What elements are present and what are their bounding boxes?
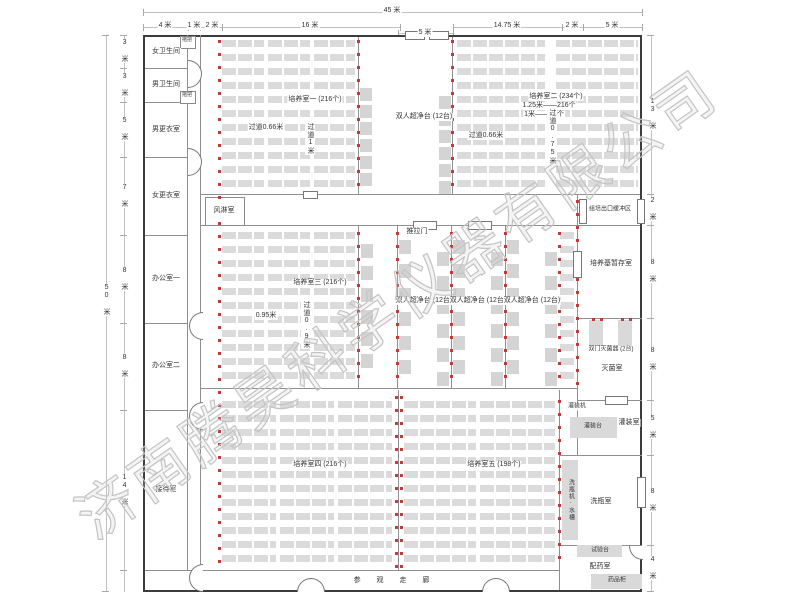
dimension-tick xyxy=(400,24,401,31)
room-label-reception: 接待室 xyxy=(155,486,178,494)
door-rect xyxy=(303,191,318,199)
red-dot xyxy=(400,461,403,464)
shelf-row xyxy=(404,471,476,478)
red-dot xyxy=(357,362,360,365)
shelf-row xyxy=(404,527,476,534)
shelf-row xyxy=(560,330,576,337)
dim-right-5: 8 米 xyxy=(647,488,657,512)
red-dot xyxy=(504,323,507,326)
shelf-row xyxy=(314,232,355,239)
dimension-tick xyxy=(120,235,127,236)
equipment-box xyxy=(589,320,603,346)
clean-bench xyxy=(453,240,465,254)
red-dot xyxy=(450,336,453,339)
inner-wall xyxy=(187,35,188,570)
dimension-tick xyxy=(143,24,144,31)
red-dot xyxy=(451,66,454,69)
red-dot xyxy=(218,508,221,511)
inner-wall xyxy=(559,390,560,590)
culture-2-note-2: 1米——18个 xyxy=(523,111,565,119)
clean-bench xyxy=(399,336,411,350)
equip-label-sterilizer: 双门灭菌器 (2台) xyxy=(587,347,634,354)
shelf-row xyxy=(556,40,638,47)
red-dot xyxy=(558,323,561,326)
shelf-row xyxy=(222,443,276,450)
red-dot xyxy=(218,521,221,524)
clean-bench xyxy=(360,173,372,186)
shelf-row xyxy=(404,555,476,562)
room-label-air-shower: 风淋室 xyxy=(213,207,236,215)
dimension-tick xyxy=(120,323,127,324)
inner-wall xyxy=(145,570,560,571)
red-dot xyxy=(450,258,453,261)
dim-left-6: 14 米 xyxy=(119,474,129,506)
red-dot xyxy=(558,336,561,339)
aisle-label-066-a: 过道0.66米 xyxy=(248,124,285,132)
red-dot xyxy=(218,79,221,82)
red-dot xyxy=(218,443,221,446)
red-dot xyxy=(400,396,403,399)
dim-right-0: 13 米 xyxy=(647,98,657,130)
red-dot xyxy=(396,323,399,326)
clean-bench xyxy=(439,181,451,194)
shelf-row xyxy=(222,96,264,103)
dimension-tick xyxy=(120,157,127,158)
shelf-row xyxy=(222,541,276,548)
red-dot xyxy=(357,271,360,274)
aisle-label-075: 过道0.75米 xyxy=(547,109,557,165)
red-dot xyxy=(451,183,454,186)
red-dot xyxy=(558,258,561,261)
red-dot xyxy=(218,352,221,355)
shelf-row xyxy=(480,471,555,478)
dimension-tick xyxy=(647,400,654,401)
red-dot xyxy=(218,456,221,459)
shelf-row xyxy=(314,330,355,337)
dim-right-2: 8 米 xyxy=(647,259,657,283)
room-label-women-locker: 女更衣室 xyxy=(151,192,181,200)
sliding-door-label: 推拉门 xyxy=(406,228,429,236)
red-dot xyxy=(451,79,454,82)
room-label-medium-storage: 培养基暂存室 xyxy=(589,260,633,268)
red-dot xyxy=(218,326,221,329)
red-dot xyxy=(396,232,399,235)
clean-bench xyxy=(507,264,519,278)
clean-bench xyxy=(360,139,372,152)
shelf-row xyxy=(338,513,392,520)
red-dot xyxy=(450,375,453,378)
red-dot xyxy=(504,258,507,261)
shelf-row xyxy=(457,82,545,89)
dimension-tick xyxy=(120,570,127,571)
shelf-row xyxy=(404,513,476,520)
shelf-row xyxy=(222,166,264,173)
red-dot xyxy=(400,539,403,542)
dim-top-total: 45 米 xyxy=(383,7,402,15)
red-dot xyxy=(218,560,221,563)
red-dot xyxy=(558,478,561,481)
shelf-row xyxy=(314,260,355,267)
aisle-label-095: 0.95米 xyxy=(255,312,278,320)
equip-label-washer-sink: 洗瓶机·水槽 xyxy=(566,479,575,521)
red-dot xyxy=(629,318,632,321)
shelf-row xyxy=(338,415,392,422)
dimension-tick xyxy=(647,545,654,546)
red-dot xyxy=(558,349,561,352)
red-dot xyxy=(400,500,403,503)
red-dot xyxy=(576,317,579,320)
red-dot xyxy=(396,362,399,365)
shelf-row xyxy=(338,443,392,450)
shelf-row xyxy=(268,138,310,145)
red-dot xyxy=(357,323,360,326)
red-dot xyxy=(558,232,561,235)
red-dot xyxy=(218,66,221,69)
clean-bench xyxy=(360,156,372,169)
red-dot xyxy=(395,461,398,464)
red-dot xyxy=(400,409,403,412)
red-dot xyxy=(218,482,221,485)
red-dot xyxy=(218,495,221,498)
red-dot xyxy=(218,40,221,43)
shelf-row xyxy=(314,152,355,159)
red-dot xyxy=(218,222,221,225)
clean-bench xyxy=(491,252,503,266)
red-dot xyxy=(558,452,561,455)
shelf-row xyxy=(268,232,310,239)
red-dot xyxy=(558,491,561,494)
red-dot xyxy=(400,487,403,490)
red-dot xyxy=(357,170,360,173)
red-dot xyxy=(218,92,221,95)
red-dot xyxy=(218,391,221,394)
shelf-row xyxy=(560,358,576,365)
red-dot xyxy=(504,284,507,287)
shelf-row xyxy=(268,246,310,253)
shelf-row xyxy=(314,82,355,89)
shelf-row xyxy=(222,527,276,534)
shelf-row xyxy=(280,555,334,562)
red-dot xyxy=(357,79,360,82)
dimension-tick xyxy=(647,35,654,36)
red-dot xyxy=(558,310,561,313)
shelf-row xyxy=(268,358,310,365)
shelf-row xyxy=(457,124,545,131)
red-dot xyxy=(451,105,454,108)
equip-label-test-bench: 试验台 xyxy=(590,548,610,555)
outer-wall xyxy=(143,35,145,592)
room-label-sterilize: 灭菌室 xyxy=(601,365,624,373)
clean-bench xyxy=(437,324,449,338)
red-dot xyxy=(504,336,507,339)
red-dot xyxy=(357,66,360,69)
red-dot xyxy=(218,183,221,186)
red-dot xyxy=(357,144,360,147)
clean-bench xyxy=(361,288,373,302)
inner-wall xyxy=(200,194,640,195)
clean-bench xyxy=(507,360,519,374)
shelf-row xyxy=(222,152,264,159)
red-dot xyxy=(396,375,399,378)
shelf-row xyxy=(222,302,264,309)
shelf-row xyxy=(222,358,264,365)
red-dot xyxy=(357,92,360,95)
red-dot xyxy=(504,245,507,248)
room-label-men-locker: 男更衣室 xyxy=(151,126,181,134)
shelf-row xyxy=(222,344,264,351)
dimension-tick xyxy=(120,102,127,103)
door-arc xyxy=(629,546,643,560)
aisle-label-066-b: 过道0.66米 xyxy=(468,132,505,140)
clean-bench xyxy=(453,336,465,350)
clean-bench xyxy=(399,264,411,278)
clean-bench xyxy=(439,164,451,177)
red-dot xyxy=(218,365,221,368)
room-label-women-toilet: 女卫生间 xyxy=(151,48,181,56)
shelf-row xyxy=(338,527,392,534)
red-dot xyxy=(395,422,398,425)
dimension-tick xyxy=(642,24,643,31)
shelf-row xyxy=(268,166,310,173)
shelf-row xyxy=(556,54,638,61)
red-dot xyxy=(600,318,603,321)
red-dot xyxy=(218,53,221,56)
red-dot xyxy=(396,284,399,287)
dimension-tick xyxy=(647,591,654,592)
shelf-row xyxy=(560,344,576,351)
red-dot xyxy=(395,526,398,529)
clean-bench xyxy=(437,372,449,386)
room-label-culture-4: 培养室四 (216个) xyxy=(292,461,347,469)
shelf-row xyxy=(314,302,355,309)
bench-label-mid-1: 双人超净台 (12台) xyxy=(395,297,453,305)
red-dot xyxy=(395,500,398,503)
red-dot xyxy=(357,232,360,235)
clean-bench xyxy=(361,354,373,368)
shelf-row xyxy=(457,180,545,187)
room-label-office-2: 办公室二 xyxy=(151,362,181,370)
clean-bench xyxy=(453,312,465,326)
shelf-row xyxy=(480,499,555,506)
red-dot xyxy=(558,530,561,533)
shelf-row xyxy=(222,110,264,117)
inner-wall xyxy=(200,35,201,570)
red-dot xyxy=(558,556,561,559)
door-arc xyxy=(189,402,203,430)
shelf-row xyxy=(222,513,276,520)
red-dot xyxy=(451,92,454,95)
room-label-dispensing: 配药室 xyxy=(589,563,612,571)
shelf-row xyxy=(457,166,545,173)
shelf-row xyxy=(268,180,310,187)
red-dot xyxy=(450,271,453,274)
inner-wall xyxy=(145,68,187,69)
red-dot xyxy=(357,258,360,261)
shelf-row xyxy=(560,288,576,295)
shelf-row xyxy=(222,274,264,281)
clean-bench xyxy=(453,264,465,278)
clean-bench xyxy=(439,147,451,160)
red-dot xyxy=(558,517,561,520)
dim-left-2: 5 米 xyxy=(119,117,129,141)
shelf-row xyxy=(560,302,576,309)
shelf-row xyxy=(338,499,392,506)
clean-bench xyxy=(545,276,557,290)
shelf-row xyxy=(480,429,555,436)
shelf-row xyxy=(314,358,355,365)
shelf-row xyxy=(338,485,392,492)
red-dot xyxy=(357,375,360,378)
door-rect xyxy=(579,199,587,224)
dimension-tick xyxy=(647,455,654,456)
shelf-row xyxy=(556,152,638,159)
aisle-label-1m: 过道1米 xyxy=(305,123,315,155)
dimension-tick xyxy=(102,591,109,592)
red-dot xyxy=(576,304,579,307)
red-dot xyxy=(218,170,221,173)
clean-bench xyxy=(361,310,373,324)
red-dot xyxy=(357,310,360,313)
red-dot xyxy=(558,362,561,365)
shelf-row xyxy=(404,499,476,506)
shelf-row xyxy=(268,68,310,75)
red-dot xyxy=(400,474,403,477)
shelf-row xyxy=(280,429,334,436)
clean-bench xyxy=(491,372,503,386)
clean-bench xyxy=(491,348,503,362)
shelf-row xyxy=(222,499,276,506)
clean-bench xyxy=(507,312,519,326)
red-dot xyxy=(558,375,561,378)
shelf-row xyxy=(314,246,355,253)
red-dot xyxy=(576,330,579,333)
dimension-tick xyxy=(647,194,654,195)
door-arc xyxy=(189,312,203,340)
red-dot xyxy=(396,336,399,339)
dimension-tick xyxy=(562,24,563,31)
red-dot xyxy=(450,349,453,352)
inner-wall xyxy=(577,194,578,455)
shelf-row xyxy=(480,527,555,534)
room-label-mop-1: 拖把 xyxy=(181,38,193,44)
shelf-row xyxy=(280,443,334,450)
clean-bench xyxy=(361,266,373,280)
clean-bench xyxy=(360,122,372,135)
red-dot xyxy=(576,278,579,281)
red-dot xyxy=(504,310,507,313)
dim-top-3: 16 米 xyxy=(301,22,320,30)
red-dot xyxy=(576,291,579,294)
red-dot xyxy=(395,552,398,555)
aisle-label-09: 过道0.9米 xyxy=(301,301,311,349)
clean-bench xyxy=(491,324,503,338)
room-label-office-1: 办公室一 xyxy=(151,275,181,283)
red-dot xyxy=(451,40,454,43)
shelf-row xyxy=(314,124,355,131)
red-dot xyxy=(400,448,403,451)
red-dot xyxy=(558,400,561,403)
shelf-row xyxy=(280,471,334,478)
red-dot xyxy=(218,547,221,550)
outer-wall xyxy=(143,35,642,37)
dim-top-0: 4 米 xyxy=(158,22,173,30)
dimension-tick xyxy=(120,68,127,69)
red-dot xyxy=(576,382,579,385)
room-label-culture-2: 培养室二 (234个) xyxy=(528,93,583,101)
shelf-row xyxy=(338,401,392,408)
dimension-tick xyxy=(647,318,654,319)
bench-label-top: 双人超净台 (12台) xyxy=(395,113,453,121)
shelf-row xyxy=(314,138,355,145)
dimension-tick xyxy=(583,24,584,31)
shelf-row xyxy=(280,485,334,492)
red-dot xyxy=(218,144,221,147)
shelf-row xyxy=(280,527,334,534)
dim-right-4: 5 米 xyxy=(647,415,657,439)
red-dot xyxy=(400,526,403,529)
shelf-row xyxy=(222,180,264,187)
shelf-row xyxy=(457,40,545,47)
door-arc xyxy=(482,578,510,592)
dim-right-1: 2 米 xyxy=(647,197,657,221)
clean-bench xyxy=(545,372,557,386)
red-dot xyxy=(218,118,221,121)
floor-plan-page: 45 米 4 米 1 米 2 米 16 米 14.75 米 2 米 5 米 5 … xyxy=(0,0,800,600)
shelf-row xyxy=(480,415,555,422)
outer-wall xyxy=(640,35,642,592)
red-dot xyxy=(558,413,561,416)
shelf-row xyxy=(457,152,545,159)
shelf-row xyxy=(560,232,576,239)
dim-top-2: 2 米 xyxy=(205,22,220,30)
dimension-tick xyxy=(102,35,109,36)
shelf-row xyxy=(338,555,392,562)
dim-left-1: 3 米 xyxy=(119,73,129,97)
red-dot xyxy=(451,53,454,56)
bench-label-mid-3: 双人超净台 (12台) xyxy=(503,297,561,305)
shelf-row xyxy=(480,401,555,408)
shelf-row xyxy=(556,82,638,89)
equip-label-medicine-cabinet: 药品柜 xyxy=(607,578,627,585)
red-dot xyxy=(218,261,221,264)
shelf-row xyxy=(314,372,355,379)
red-dot xyxy=(357,284,360,287)
red-dot xyxy=(576,343,579,346)
red-dot xyxy=(558,543,561,546)
room-label-culture-5: 培养室五 (198个) xyxy=(466,461,521,469)
red-dot xyxy=(357,349,360,352)
room-label-culture-3: 培养室三 (216个) xyxy=(292,279,347,287)
clean-bench xyxy=(507,336,519,350)
shelf-row xyxy=(314,344,355,351)
red-dot xyxy=(395,396,398,399)
inner-wall xyxy=(200,388,577,389)
door-rect xyxy=(573,251,582,278)
dim-top-6: 5 米 xyxy=(605,22,620,30)
clean-bench xyxy=(491,276,503,290)
shelf-row xyxy=(222,138,264,145)
inner-wall xyxy=(398,390,399,570)
red-dot xyxy=(357,105,360,108)
red-dot xyxy=(395,513,398,516)
red-dot xyxy=(558,504,561,507)
shelf-row xyxy=(222,415,276,422)
shelf-row xyxy=(480,513,555,520)
red-dot xyxy=(395,565,398,568)
dimension-tick xyxy=(642,9,643,16)
shelf-row xyxy=(268,110,310,117)
dim-top-5: 2 米 xyxy=(565,22,580,30)
